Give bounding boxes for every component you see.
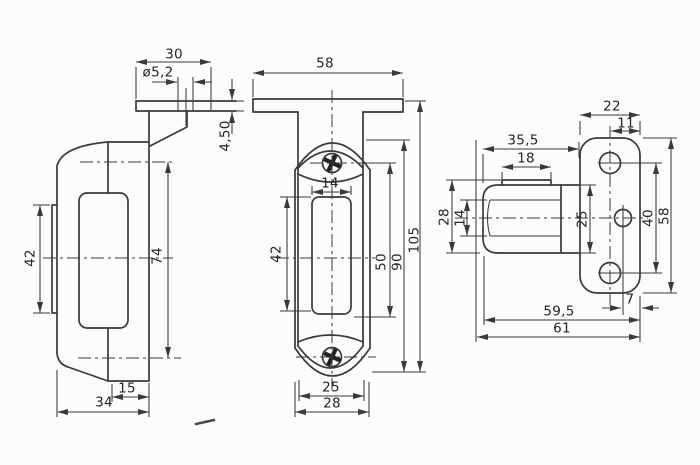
dim-label-side-lens-height: 42 — [24, 249, 38, 267]
dim-label-front-overall-height: 105 — [408, 227, 422, 254]
front-flange — [253, 99, 403, 112]
dim-label-side-hole-diameter: ø5,2 — [143, 66, 174, 80]
side-lens-window — [79, 193, 128, 328]
dim-label-top-body-depth: 28 — [438, 208, 452, 226]
dim-label-side-flange-thickness: 4,50 — [219, 120, 233, 151]
dim-label-top-body-height: 25 — [576, 210, 590, 228]
dim-label-front-window-width: 14 — [321, 177, 339, 191]
dim-label-front-lens-width: 25 — [322, 381, 340, 395]
dim-label-front-window-height: 42 — [270, 245, 284, 263]
front-center-lines — [276, 90, 376, 390]
dim-label-top-plate-length: 58 — [658, 207, 672, 225]
dim-label-top-body-length: 35,5 — [507, 134, 538, 148]
dim-label-top-hole-edge-offset: 7 — [626, 293, 635, 307]
technical-drawing-page: 30 ø5,2 4,50 42 74 15 34 58 14 42 50 90 … — [0, 0, 700, 465]
side-view-linework — [33, 62, 244, 417]
dim-label-front-body-height: 90 — [391, 253, 405, 271]
dim-label-side-flange-width: 30 — [165, 48, 183, 62]
dim-label-top-plate-width: 22 — [603, 100, 621, 114]
dim-label-side-hole-spacing: 74 — [151, 247, 165, 265]
top-body-outline — [483, 185, 561, 253]
dim-label-front-body-width: 28 — [323, 397, 341, 411]
dim-label-top-hole-spacing: 40 — [642, 209, 656, 227]
dim-label-top-body-to-plate-end: 59,5 — [543, 305, 574, 319]
dim-label-side-foot-depth: 15 — [118, 382, 136, 396]
dim-label-top-hole-inset: 11 — [617, 117, 635, 131]
dim-label-top-lens-length: 18 — [517, 152, 535, 166]
dim-label-side-body-depth: 34 — [95, 396, 113, 410]
dim-label-top-overall-length: 61 — [553, 322, 571, 336]
side-dimension-lines — [33, 62, 244, 417]
dim-label-front-screw-to-window: 50 — [375, 253, 389, 271]
dim-label-front-flange-width: 58 — [316, 57, 334, 71]
dim-label-top-window-depth: 14 — [454, 209, 468, 227]
side-profile-outline — [57, 142, 149, 381]
stray-pen-mark — [196, 420, 214, 424]
